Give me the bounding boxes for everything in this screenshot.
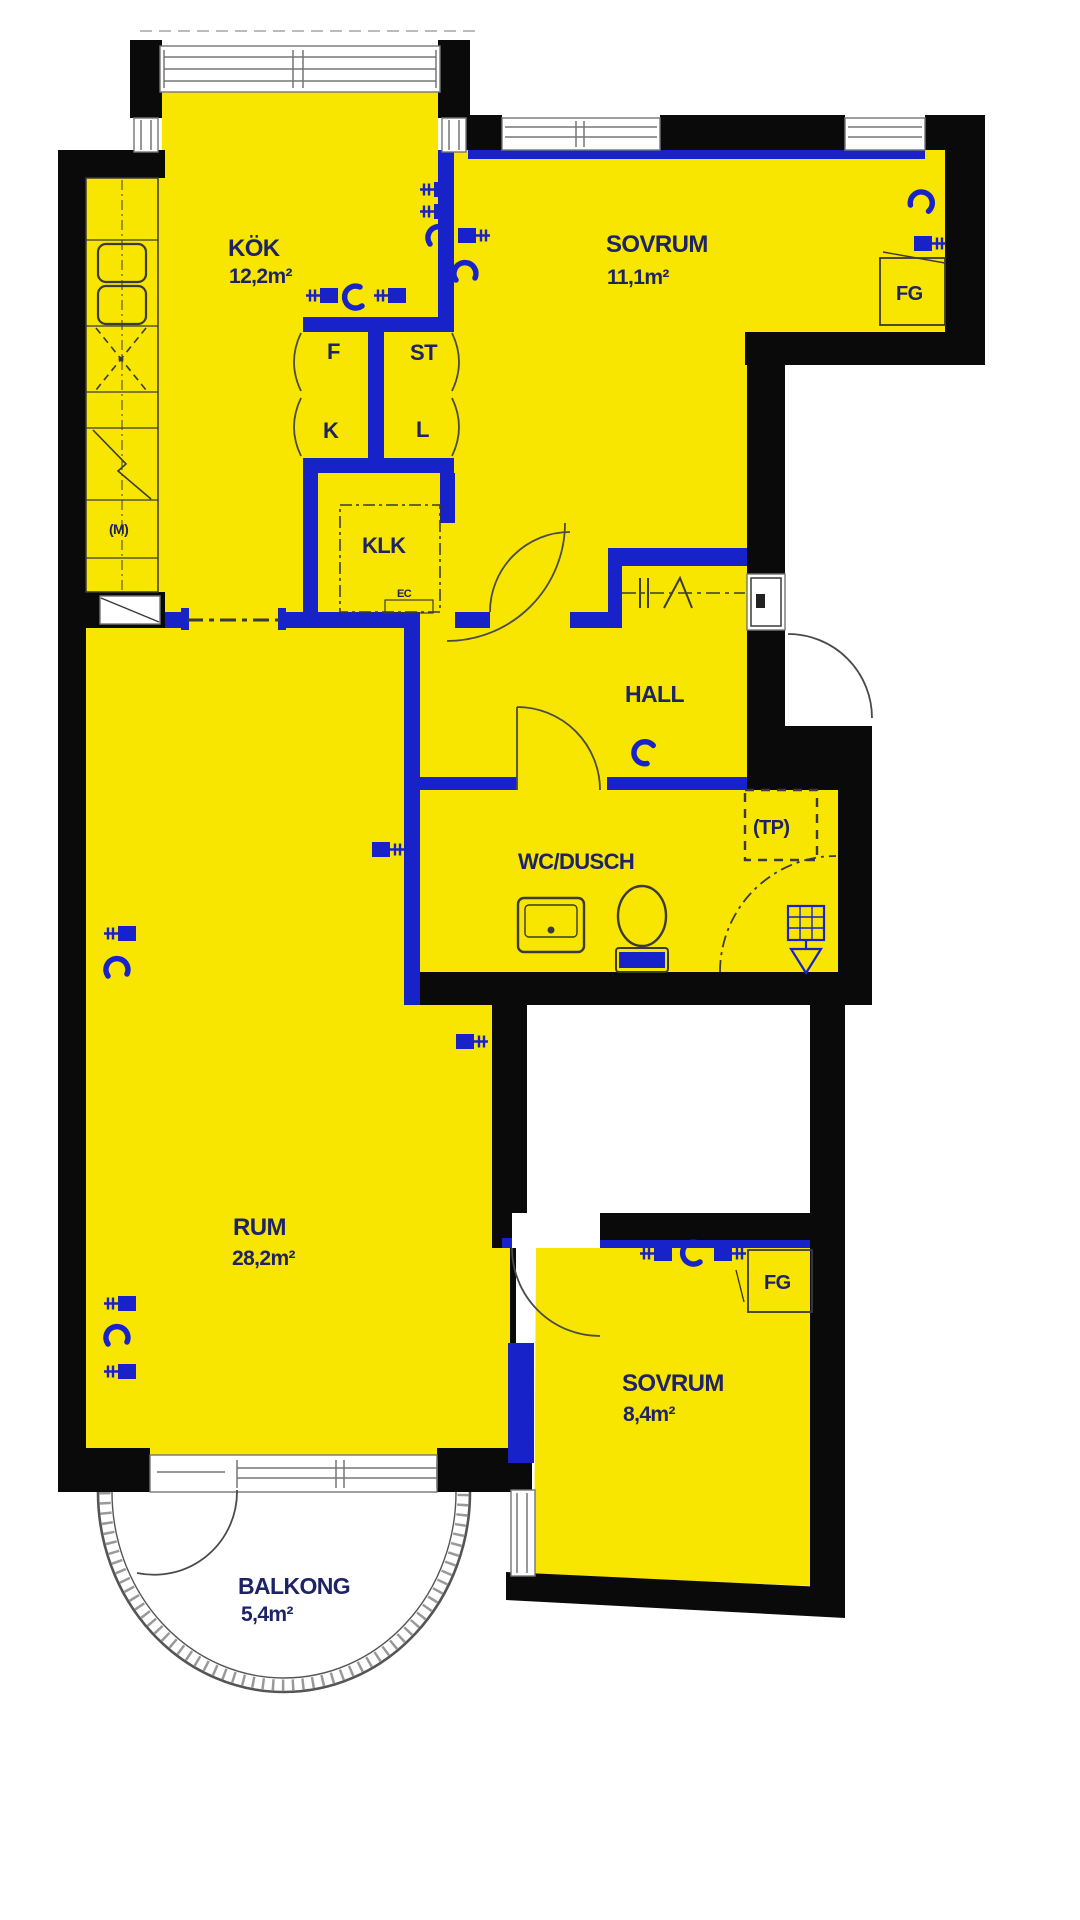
room-area-sovrum-stor: 11,1m² xyxy=(607,266,669,289)
closet-label-k: K xyxy=(323,418,339,443)
room-label-wc: WC/DUSCH xyxy=(518,849,634,874)
window-icon xyxy=(511,1490,535,1576)
entry-door-swing-icon xyxy=(788,634,872,718)
machine-label: (M) xyxy=(109,521,128,537)
room-label-balkong: BALKONG xyxy=(238,1573,350,1599)
heating-pipe-icon xyxy=(640,1246,672,1261)
room-area-kok: 12,2m² xyxy=(229,265,293,288)
room-area-balkong: 5,4m² xyxy=(241,1603,293,1626)
heating-pipe-icon xyxy=(374,288,406,303)
closet-label-fg-bottom: FG xyxy=(764,1272,791,1294)
closet-label-fg-top: FG xyxy=(896,283,923,305)
heating-pipe-icon xyxy=(714,1246,746,1261)
tp-label: (TP) xyxy=(753,817,789,839)
heating-pipe-icon xyxy=(420,204,452,219)
room-label-rum: RUM xyxy=(233,1214,286,1241)
heating-pipe-icon xyxy=(458,228,490,243)
closet-label-l: L xyxy=(416,417,429,442)
floor-plan-svg: KÖK 12,2m² SOVRUM 11,1m² F ST K L KLK EC… xyxy=(0,0,1080,1920)
entry-door-opening xyxy=(747,574,785,630)
room-label-kok: KÖK xyxy=(228,235,281,262)
balcony-door-swing-icon xyxy=(137,1490,237,1575)
heating-pipe-icon xyxy=(456,1034,488,1049)
floor-plan-page: KÖK 12,2m² SOVRUM 11,1m² F ST K L KLK EC… xyxy=(0,0,1080,1920)
window-icon xyxy=(502,118,660,150)
entry-door-handle xyxy=(756,594,765,608)
closet-label-f: F xyxy=(327,339,340,364)
bedroom-door-opening xyxy=(512,1213,600,1248)
room-label-sovrum-stor: SOVRUM xyxy=(606,231,708,258)
el-cabinet-label: EC xyxy=(397,588,412,600)
room-label-sovrum-liten: SOVRUM xyxy=(622,1370,724,1397)
room-label-klk: KLK xyxy=(362,533,406,558)
heating-pipe-icon xyxy=(306,288,338,303)
heating-pipe-icon xyxy=(104,1364,136,1379)
room-area-sovrum-liten: 8,4m² xyxy=(623,1403,675,1426)
heating-pipe-icon xyxy=(914,236,946,251)
balcony-door-window xyxy=(150,1455,437,1492)
window-icon xyxy=(845,118,925,150)
room-label-hall: HALL xyxy=(625,681,684,707)
room-area-rum: 28,2m² xyxy=(232,1247,296,1270)
heating-pipe-icon xyxy=(104,1296,136,1311)
closet-label-st: ST xyxy=(410,340,438,365)
heating-pipe-icon xyxy=(420,182,452,197)
heating-pipe-icon xyxy=(104,926,136,941)
heating-pipe-icon xyxy=(372,842,404,857)
